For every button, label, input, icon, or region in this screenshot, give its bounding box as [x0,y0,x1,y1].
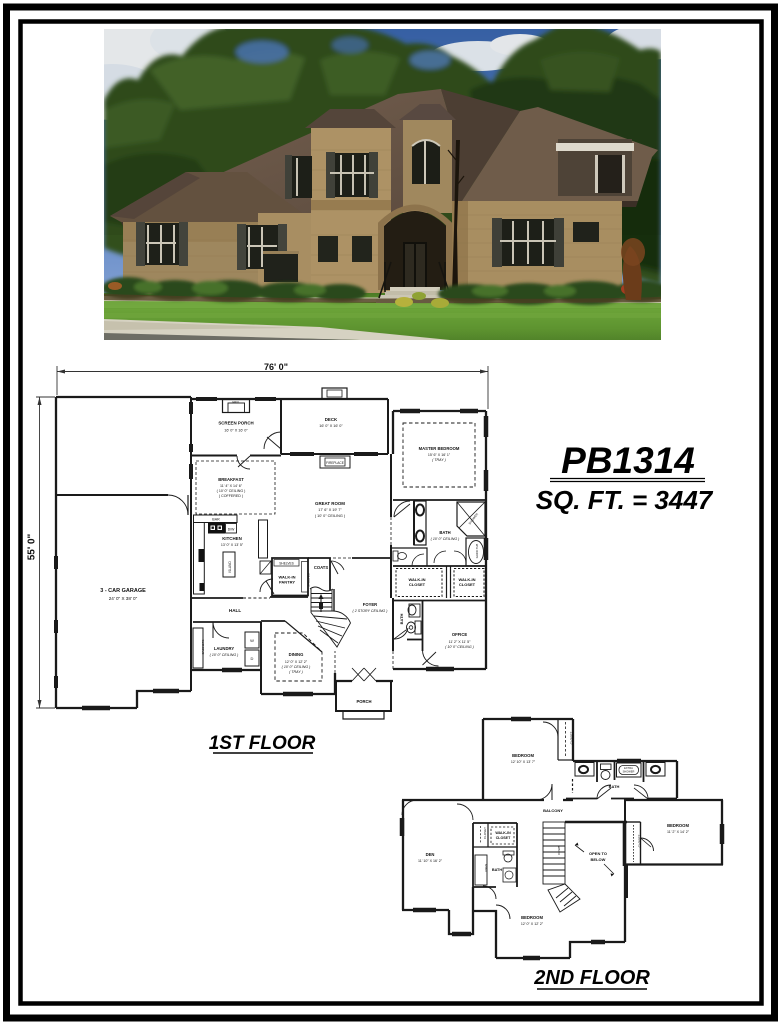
svg-text:CLOSET: CLOSET [496,836,511,840]
svg-text:16' 0" X 16' 0": 16' 0" X 16' 0" [224,429,248,433]
svg-text:15' 6" X 16' 1": 15' 6" X 16' 1" [428,453,451,457]
svg-text:PORCH: PORCH [356,699,371,704]
svg-text:( 10' 0" CEILING ): ( 10' 0" CEILING ) [217,489,246,493]
svg-text:( 2 STORY CEILING ): ( 2 STORY CEILING ) [353,609,388,613]
svg-text:( COFFERED ): ( COFFERED ) [219,494,243,498]
svg-text:SHELVES: SHELVES [279,562,293,566]
svg-text:1ST FLOOR: 1ST FLOOR [209,733,316,754]
svg-text:11' 4" X 14' 6": 11' 4" X 14' 6" [220,484,243,488]
svg-text:HALL: HALL [229,608,241,613]
svg-text:SCREEN PORCH: SCREEN PORCH [218,421,253,426]
svg-text:( 10' 0" CEILING ): ( 10' 0" CEILING ) [210,653,239,657]
svg-text:BATH: BATH [439,530,450,535]
svg-text:W: W [250,638,254,643]
svg-text:BELOW: BELOW [591,857,606,862]
svg-text:OPEN TO: OPEN TO [589,851,607,856]
svg-text:BALCONY: BALCONY [543,808,563,813]
svg-text:CLOSET: CLOSET [638,835,642,848]
svg-text:LAUNDRY: LAUNDRY [214,646,235,651]
svg-text:13' 0" X 13' 5": 13' 0" X 13' 5" [221,543,244,547]
svg-text:11' 2" X 14' 2": 11' 2" X 14' 2" [667,830,690,834]
svg-text:PB1314: PB1314 [561,440,695,481]
svg-text:COATS: COATS [314,565,329,570]
svg-text:11' 2" X 11' 5": 11' 2" X 11' 5" [449,640,471,644]
svg-text:( 10' 0" CEILING ): ( 10' 0" CEILING ) [431,537,460,541]
svg-text:BATH: BATH [492,868,503,872]
svg-text:LINEN: LINEN [484,864,488,872]
svg-text:76' 0": 76' 0" [264,362,288,372]
svg-text:DINING: DINING [289,652,304,657]
svg-text:GREAT ROOM: GREAT ROOM [315,501,345,506]
svg-text:PANTRY: PANTRY [279,580,295,585]
svg-text:BEDROOM: BEDROOM [521,915,543,920]
svg-text:12' 0" X 12' 2": 12' 0" X 12' 2" [285,660,308,664]
svg-text:CLOSET: CLOSET [483,827,487,839]
svg-text:12' 0" X 12' 2": 12' 0" X 12' 2" [521,922,544,926]
svg-text:24' 0" X 38' 0": 24' 0" X 38' 0" [109,596,138,601]
svg-text:MASTER BEDROOM: MASTER BEDROOM [419,446,460,451]
svg-text:KITCHEN: KITCHEN [222,536,242,541]
svg-text:OFFICE: OFFICE [452,632,468,637]
svg-text:BATH: BATH [399,613,404,624]
svg-text:SHOWER: SHOWER [468,512,480,526]
svg-text:16' 0" X 16' 0": 16' 0" X 16' 0" [319,424,343,428]
svg-text:( 10' 0" CEILING ): ( 10' 0" CEILING ) [315,514,346,518]
svg-text:( 10' 0" CEILING ): ( 10' 0" CEILING ) [445,645,474,649]
svg-text:12' 10" X 13' 7": 12' 10" X 13' 7" [511,760,536,764]
svg-text:( 10' 0" CEILING ): ( 10' 0" CEILING ) [282,665,311,669]
svg-text:FOYER: FOYER [363,602,377,607]
svg-text:EXTRA: EXTRA [624,766,633,770]
svg-text:DEN: DEN [426,852,435,857]
svg-text:DECK: DECK [325,417,338,422]
svg-text:CLOSET: CLOSET [570,732,574,745]
svg-text:55' 0": 55' 0" [27,533,38,560]
svg-text:3 - CAR GARAGE: 3 - CAR GARAGE [100,588,146,594]
svg-text:BEDROOM: BEDROOM [512,753,534,758]
svg-text:WALK-IN: WALK-IN [495,831,511,835]
svg-text:2ND FLOOR: 2ND FLOOR [533,967,650,989]
svg-text:GARD.TUB: GARD.TUB [475,544,479,559]
svg-text:CABINETS: CABINETS [201,639,205,654]
svg-text:DOWN: DOWN [557,845,561,855]
svg-text:CLOSET: CLOSET [459,582,476,587]
svg-text:BAR: BAR [212,518,220,522]
svg-text:D/W: D/W [228,528,235,532]
svg-text:BEDROOM: BEDROOM [667,823,689,828]
svg-text:GRILL: GRILL [232,400,241,404]
svg-text:( TRAY ): ( TRAY ) [432,458,446,462]
svg-text:17' 6" X 19' 7": 17' 6" X 19' 7" [318,508,342,512]
svg-text:ISLAND: ISLAND [228,561,232,573]
svg-text:SHOWER: SHOWER [623,769,635,773]
svg-text:SQ. FT. = 3447: SQ. FT. = 3447 [536,485,714,515]
svg-text:FIREPLACE: FIREPLACE [326,461,344,465]
svg-text:BREAKFAST: BREAKFAST [218,477,244,482]
svg-text:11' 10" X 16' 2": 11' 10" X 16' 2" [418,859,443,863]
svg-text:CLOSET: CLOSET [409,582,426,587]
svg-text:D: D [251,656,254,661]
svg-text:SHELVES: SHELVES [307,573,311,587]
svg-text:( TRAY ): ( TRAY ) [289,670,303,674]
